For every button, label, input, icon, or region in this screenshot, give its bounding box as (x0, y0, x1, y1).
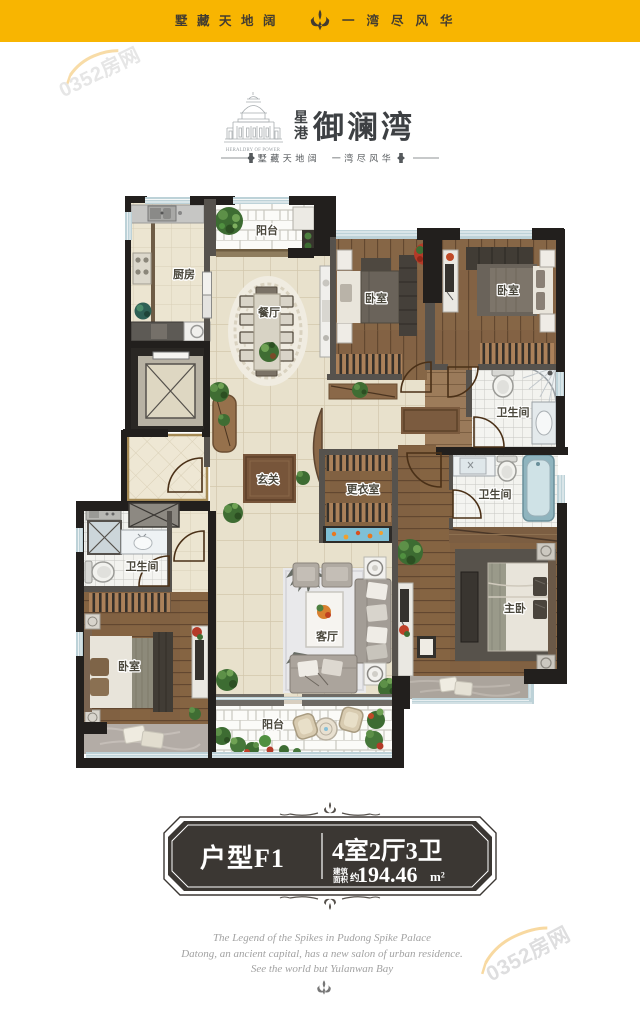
svg-text:厨房: 厨房 (173, 267, 195, 281)
svg-text:卧室: 卧室 (497, 283, 519, 297)
svg-text:餐厅: 餐厅 (257, 305, 280, 319)
svg-text:m²: m² (430, 869, 445, 884)
svg-text:194.46: 194.46 (357, 862, 418, 887)
svg-text:主卧: 主卧 (504, 601, 526, 615)
svg-text:The Legend of the Spikes in Pu: The Legend of the Spikes in Pudong Spike… (213, 932, 431, 944)
svg-text:4室2厅3卫: 4室2厅3卫 (332, 836, 442, 865)
svg-text:更衣室: 更衣室 (347, 482, 380, 496)
svg-text:卧室: 卧室 (365, 291, 387, 305)
svg-text:客厅: 客厅 (315, 629, 338, 643)
svg-text:阳台: 阳台 (256, 223, 278, 237)
svg-text:See the world but Yulanwan Bay: See the world but Yulanwan Bay (251, 963, 393, 975)
svg-text:卫生间: 卫生间 (479, 487, 512, 501)
svg-text:户型F1: 户型F1 (200, 843, 285, 873)
svg-text:Datong, an ancient capital, ha: Datong, an ancient capital, has a new sa… (180, 948, 463, 960)
svg-text:卫生间: 卫生间 (497, 405, 530, 419)
svg-text:卧室: 卧室 (118, 659, 140, 673)
svg-text:卫生间: 卫生间 (126, 559, 159, 573)
svg-text:面积: 面积 (333, 874, 348, 884)
svg-text:阳台: 阳台 (262, 717, 284, 731)
svg-text:玄关: 玄关 (257, 472, 279, 486)
